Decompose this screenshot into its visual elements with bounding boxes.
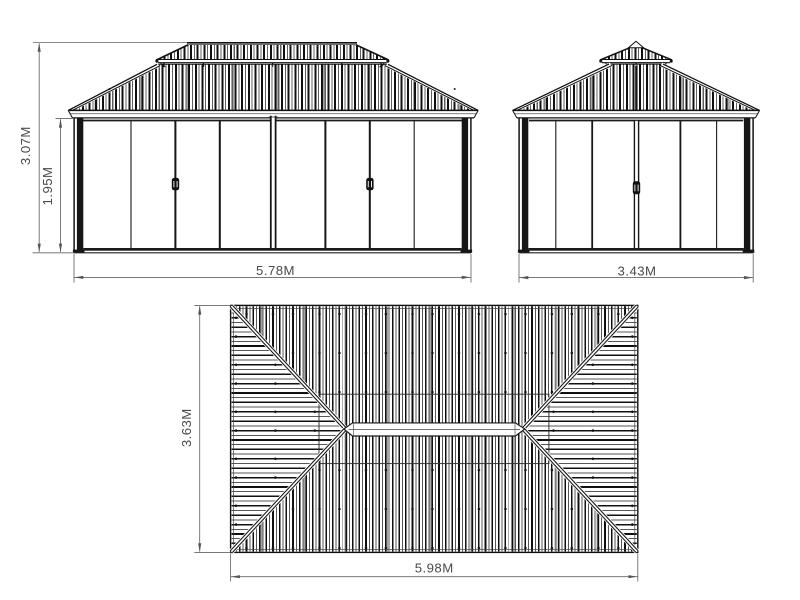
- svg-text:3.63M: 3.63M: [179, 408, 194, 447]
- svg-text:1.95M: 1.95M: [40, 167, 55, 206]
- svg-text:3.07M: 3.07M: [18, 126, 33, 165]
- svg-text:3.43M: 3.43M: [618, 264, 657, 279]
- svg-text:5.98M: 5.98M: [415, 561, 454, 576]
- svg-text:5.78M: 5.78M: [256, 263, 295, 278]
